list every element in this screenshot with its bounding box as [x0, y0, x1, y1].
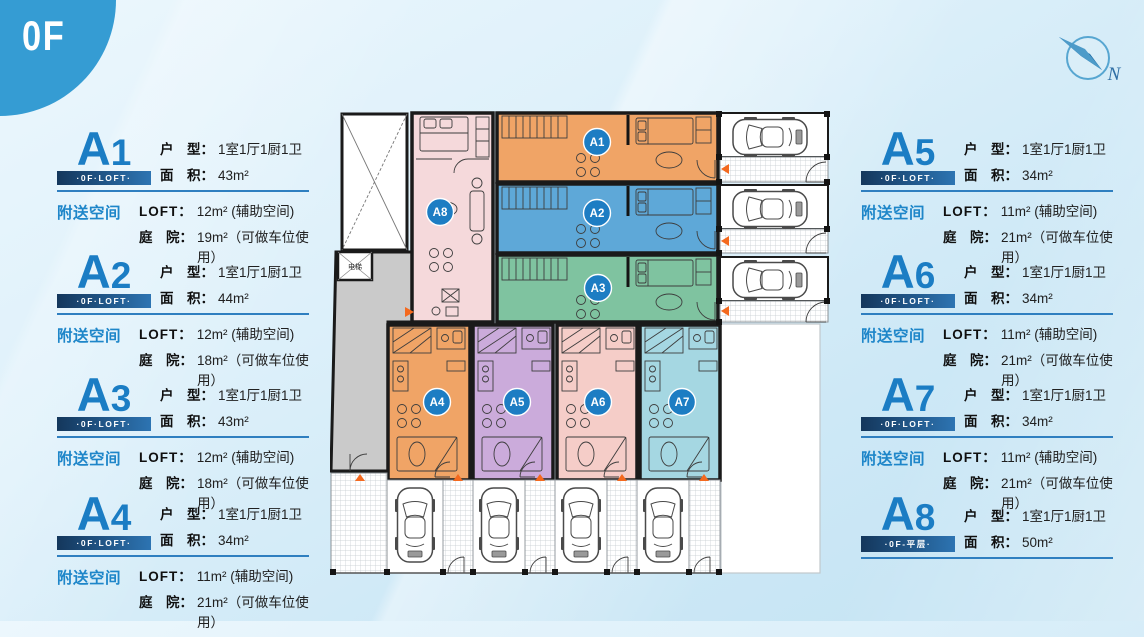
- loft-row: LOFT：12m² (辅助空间): [139, 323, 309, 343]
- unit-code: A2: [57, 251, 151, 292]
- badge-label: A6: [591, 397, 606, 409]
- area-row: 面 积：43m²: [160, 410, 309, 430]
- area-value: 43m²: [218, 168, 249, 183]
- panel-divider: [57, 436, 309, 438]
- loft-row: LOFT：11m² (辅助空间): [943, 446, 1113, 466]
- type-value: 1室1厅1厨1卫: [1022, 384, 1106, 404]
- unit-badge-a8: A8: [427, 199, 454, 226]
- loft-value: 11m² (辅助空间): [197, 565, 294, 585]
- yard-label: 庭 院：: [943, 226, 997, 246]
- type-label: 户 型：: [964, 505, 1018, 525]
- floor-plan-svg: 电梯: [330, 100, 830, 600]
- panel-head: A3 ·0F·LOFT· 户 型：1室1厅1厨1卫 面 积：43m²: [57, 374, 309, 431]
- unit-code: A6: [861, 251, 955, 292]
- loft-label: LOFT：: [139, 565, 193, 585]
- loft-row: LOFT：11m² (辅助空间): [139, 565, 309, 585]
- area-label: 面 积：: [160, 287, 214, 307]
- unit-badge-a5: A5: [504, 389, 531, 416]
- area-row: 面 积：34m²: [964, 410, 1113, 430]
- area-label: 面 积：: [160, 529, 214, 549]
- badge-label: A4: [430, 397, 445, 409]
- unit-code-block: A8 ·0F-平层·: [861, 493, 955, 552]
- panel-head: A7 ·0F·LOFT· 户 型：1室1厅1厨1卫 面 积：34m²: [861, 374, 1113, 431]
- loft-row: LOFT：11m² (辅助空间): [943, 323, 1113, 343]
- car-icon: [733, 117, 807, 300]
- area-value: 43m²: [218, 414, 249, 429]
- area-row: 面 积：50m²: [964, 531, 1113, 551]
- unit-code: A8: [861, 493, 955, 534]
- type-label: 户 型：: [160, 138, 214, 158]
- unit-specs: 户 型：1室1厅1厨1卫 面 积：43m²: [160, 132, 309, 185]
- compass-icon: N: [1052, 28, 1132, 94]
- code-letter: A: [881, 128, 915, 169]
- unit-panel-a4: A4 ·0F·LOFT· 户 型：1室1厅1厨1卫 面 积：34m² 附送空间 …: [57, 493, 309, 637]
- code-letter: A: [881, 493, 915, 534]
- unit-code-block: A2 ·0F·LOFT·: [57, 251, 151, 308]
- unit-specs: 户 型：1室1厅1厨1卫 面 积：50m²: [964, 499, 1113, 552]
- unit-panel-a8: A8 ·0F-平层· 户 型：1室1厅1厨1卫 面 积：50m²: [861, 493, 1113, 559]
- type-label: 户 型：: [160, 384, 214, 404]
- compass: N: [1052, 28, 1132, 94]
- unit-specs: 户 型：1室1厅1厨1卫 面 积：34m²: [964, 378, 1113, 431]
- panel-divider: [861, 557, 1113, 559]
- code-number: 3: [111, 383, 132, 416]
- panel-head: A4 ·0F·LOFT· 户 型：1室1厅1厨1卫 面 积：34m²: [57, 493, 309, 550]
- unit-badge-a4: A4: [424, 389, 451, 416]
- bonus-section: 附送空间 LOFT：11m² (辅助空间) 庭 院：21m²（可做车位使用）: [57, 565, 309, 637]
- bonus-rows: LOFT：11m² (辅助空间) 庭 院：21m²（可做车位使用）: [139, 565, 309, 637]
- code-letter: A: [881, 251, 915, 292]
- area-row: 面 积：34m²: [964, 164, 1113, 184]
- unit-code: A5: [861, 128, 955, 169]
- loft-label: LOFT：: [139, 323, 193, 343]
- type-row: 户 型：1室1厅1厨1卫: [964, 384, 1113, 404]
- panel-divider: [861, 190, 1113, 192]
- empty-lot: [721, 324, 820, 573]
- yard-label: 庭 院：: [139, 349, 193, 369]
- parking-bottom: [330, 473, 722, 575]
- code-letter: A: [77, 374, 111, 415]
- unit-ribbon: ·0F·LOFT·: [57, 171, 151, 185]
- panel-divider: [57, 555, 309, 557]
- type-value: 1室1厅1厨1卫: [218, 384, 302, 404]
- yard-label: 庭 院：: [139, 226, 193, 246]
- loft-row: LOFT：12m² (辅助空间): [139, 446, 309, 466]
- panel-head: A5 ·0F·LOFT· 户 型：1室1厅1厨1卫 面 积：34m²: [861, 128, 1113, 185]
- panel-head: A2 ·0F·LOFT· 户 型：1室1厅1厨1卫 面 积：44m²: [57, 251, 309, 308]
- parking-right: [720, 113, 828, 322]
- type-row: 户 型：1室1厅1厨1卫: [160, 384, 309, 404]
- unit-badge-a7: A7: [669, 389, 696, 416]
- loft-label: LOFT：: [943, 323, 997, 343]
- yard-label: 庭 院：: [139, 591, 193, 611]
- area-label: 面 积：: [160, 410, 214, 430]
- unit-specs: 户 型：1室1厅1厨1卫 面 积：34m²: [964, 255, 1113, 308]
- type-value: 1室1厅1厨1卫: [218, 138, 302, 158]
- code-number: 8: [915, 502, 936, 535]
- code-number: 7: [915, 383, 936, 416]
- yard-label: 庭 院：: [943, 349, 997, 369]
- type-label: 户 型：: [964, 138, 1018, 158]
- type-value: 1室1厅1厨1卫: [1022, 261, 1106, 281]
- unit-ribbon: ·0F·LOFT·: [57, 417, 151, 431]
- yard-label: 庭 院：: [139, 472, 193, 492]
- unit-ribbon: ·0F·LOFT·: [57, 294, 151, 308]
- unit-code-block: A3 ·0F·LOFT·: [57, 374, 151, 431]
- bonus-label: 附送空间: [57, 565, 139, 637]
- yard-label: 庭 院：: [943, 472, 997, 492]
- badge-label: A7: [675, 397, 690, 409]
- elevator: 电梯: [338, 252, 372, 280]
- unit-code-block: A1 ·0F·LOFT·: [57, 128, 151, 185]
- area-label: 面 积：: [964, 287, 1018, 307]
- loft-value: 11m² (辅助空间): [1001, 200, 1098, 220]
- unit-badge-a6: A6: [585, 389, 612, 416]
- unit-badge-a2: A2: [584, 200, 611, 227]
- unit-code: A1: [57, 128, 151, 169]
- area-row: 面 积：34m²: [160, 529, 309, 549]
- floor-plan: 电梯: [330, 100, 830, 600]
- code-number: 5: [915, 137, 936, 170]
- yard-row: 庭 院：21m²（可做车位使用）: [139, 591, 309, 631]
- type-label: 户 型：: [160, 503, 214, 523]
- loft-value: 11m² (辅助空间): [1001, 446, 1098, 466]
- unit-code-block: A6 ·0F·LOFT·: [861, 251, 955, 308]
- loft-value: 12m² (辅助空间): [197, 200, 295, 220]
- area-label: 面 积：: [160, 164, 214, 184]
- panel-head: A8 ·0F-平层· 户 型：1室1厅1厨1卫 面 积：50m²: [861, 493, 1113, 552]
- loft-label: LOFT：: [139, 200, 193, 220]
- type-row: 户 型：1室1厅1厨1卫: [160, 261, 309, 281]
- panel-divider: [861, 313, 1113, 315]
- elevator-label: 电梯: [348, 262, 362, 271]
- unit-ribbon: ·0F·LOFT·: [861, 294, 955, 308]
- loft-label: LOFT：: [139, 446, 193, 466]
- unit-specs: 户 型：1室1厅1厨1卫 面 积：34m²: [160, 497, 309, 550]
- unit-code-block: A5 ·0F·LOFT·: [861, 128, 955, 185]
- loft-value: 11m² (辅助空间): [1001, 323, 1098, 343]
- panel-head: A6 ·0F·LOFT· 户 型：1室1厅1厨1卫 面 积：34m²: [861, 251, 1113, 308]
- area-value: 44m²: [218, 291, 249, 306]
- stair-void-block: [342, 114, 407, 250]
- code-letter: A: [881, 374, 915, 415]
- type-row: 户 型：1室1厅1厨1卫: [964, 261, 1113, 281]
- loft-label: LOFT：: [943, 200, 997, 220]
- loft-value: 12m² (辅助空间): [197, 446, 295, 466]
- type-label: 户 型：: [160, 261, 214, 281]
- loft-value: 12m² (辅助空间): [197, 323, 295, 343]
- panel-divider: [57, 190, 309, 192]
- area-row: 面 积：34m²: [964, 287, 1113, 307]
- type-label: 户 型：: [964, 384, 1018, 404]
- area-value: 34m²: [1022, 414, 1053, 429]
- unit-code-block: A7 ·0F·LOFT·: [861, 374, 955, 431]
- type-row: 户 型：1室1厅1厨1卫: [160, 138, 309, 158]
- type-value: 1室1厅1厨1卫: [1022, 138, 1106, 158]
- badge-label: A3: [591, 283, 606, 295]
- area-row: 面 积：44m²: [160, 287, 309, 307]
- badge-label: A8: [433, 207, 448, 219]
- code-number: 1: [111, 137, 132, 170]
- compass-n-label: N: [1107, 64, 1122, 85]
- area-value: 50m²: [1022, 535, 1053, 550]
- badge-label: A2: [590, 208, 605, 220]
- loft-row: LOFT：11m² (辅助空间): [943, 200, 1113, 220]
- area-row: 面 积：43m²: [160, 164, 309, 184]
- panel-divider: [861, 436, 1113, 438]
- type-row: 户 型：1室1厅1厨1卫: [964, 138, 1113, 158]
- unit-specs: 户 型：1室1厅1厨1卫 面 积：44m²: [160, 255, 309, 308]
- panel-divider: [57, 313, 309, 315]
- unit-code-block: A4 ·0F·LOFT·: [57, 493, 151, 550]
- unit-ribbon: ·0F-平层·: [861, 536, 955, 552]
- area-label: 面 积：: [964, 410, 1018, 430]
- type-row: 户 型：1室1厅1厨1卫: [160, 503, 309, 523]
- yard-value: 21m²（可做车位使用）: [197, 591, 309, 631]
- panel-head: A1 ·0F·LOFT· 户 型：1室1厅1厨1卫 面 积：43m²: [57, 128, 309, 185]
- unit-ribbon: ·0F·LOFT·: [57, 536, 151, 550]
- area-value: 34m²: [1022, 168, 1053, 183]
- type-value: 1室1厅1厨1卫: [218, 503, 302, 523]
- badge-label: A1: [590, 137, 605, 149]
- unit-specs: 户 型：1室1厅1厨1卫 面 积：34m²: [964, 132, 1113, 185]
- code-letter: A: [77, 493, 111, 534]
- unit-code: A7: [861, 374, 955, 415]
- code-letter: A: [77, 128, 111, 169]
- type-row: 户 型：1室1厅1厨1卫: [964, 505, 1113, 525]
- logo-text: 0F: [22, 12, 65, 60]
- unit-specs: 户 型：1室1厅1厨1卫 面 积：43m²: [160, 378, 309, 431]
- code-letter: A: [77, 251, 111, 292]
- loft-label: LOFT：: [943, 446, 997, 466]
- area-value: 34m²: [1022, 291, 1053, 306]
- type-value: 1室1厅1厨1卫: [218, 261, 302, 281]
- code-number: 4: [111, 502, 132, 535]
- area-label: 面 积：: [964, 531, 1018, 551]
- unit-badge-a1: A1: [584, 129, 611, 156]
- type-label: 户 型：: [964, 261, 1018, 281]
- area-value: 34m²: [218, 533, 249, 548]
- logo-0f-badge: 0F: [0, 0, 116, 116]
- unit-ribbon: ·0F·LOFT·: [861, 171, 955, 185]
- unit-badge-a3: A3: [585, 275, 612, 302]
- area-label: 面 积：: [964, 164, 1018, 184]
- code-number: 6: [915, 260, 936, 293]
- unit-code: A4: [57, 493, 151, 534]
- code-number: 2: [111, 260, 132, 293]
- unit-ribbon: ·0F·LOFT·: [861, 417, 955, 431]
- unit-code: A3: [57, 374, 151, 415]
- type-value: 1室1厅1厨1卫: [1022, 505, 1106, 525]
- loft-row: LOFT：12m² (辅助空间): [139, 200, 309, 220]
- badge-label: A5: [510, 397, 525, 409]
